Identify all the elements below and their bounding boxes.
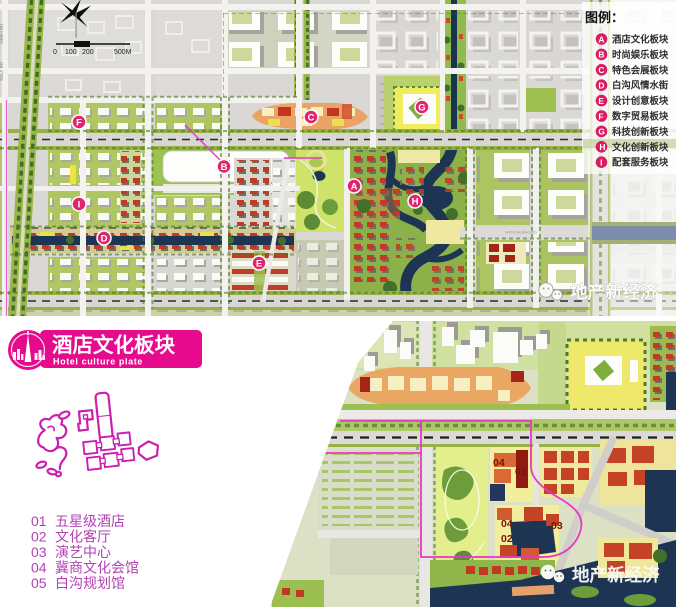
svg-text:酒店文化板块: 酒店文化板块 [52,333,175,357]
svg-text:D: D [598,81,604,91]
svg-text:酒店文化板块: 酒店文化板块 [612,34,669,45]
svg-text:E: E [598,96,604,106]
svg-text:01: 01 [515,466,527,478]
svg-text:GEBH RD: GEBH RD [0,23,4,44]
svg-text:H: H [412,197,419,208]
svg-text:D: D [101,234,108,245]
svg-text:04: 04 [493,457,505,469]
svg-text:图例：: 图例： [585,10,624,25]
svg-text:白沟规划馆: 白沟规划馆 [55,575,125,591]
svg-text:02: 02 [31,529,47,545]
svg-text:B: B [221,162,228,173]
svg-text:C: C [308,113,315,124]
svg-text:G: G [418,103,425,114]
svg-text:数字贸易板块: 数字贸易板块 [611,111,669,122]
svg-text:03: 03 [551,520,563,532]
svg-text:03: 03 [31,544,47,560]
svg-text:演艺中心: 演艺中心 [55,544,111,560]
svg-text:G: G [598,127,605,137]
svg-text:文化客厅: 文化客厅 [55,529,111,545]
svg-text:白沟风情水街: 白沟风情水街 [612,80,669,91]
svg-text:地产新经济: 地产新经济 [572,565,660,585]
svg-text:E: E [256,259,262,270]
svg-text:文化创新板块: 文化创新板块 [611,141,669,152]
svg-text:F: F [76,118,82,129]
svg-text:特色会展板块: 特色会展板块 [612,64,669,75]
svg-text:500M: 500M [114,49,132,56]
svg-text:时尚娱乐板块: 时尚娱乐板块 [612,49,669,60]
svg-text:05: 05 [31,575,47,591]
svg-text:地产新经济: 地产新经济 [570,282,658,302]
svg-text:科技创新板块: 科技创新板块 [612,126,669,137]
svg-text:WENCHUANG RD: WENCHUANG RD [505,231,537,235]
svg-text:B: B [598,50,604,60]
svg-text:200: 200 [82,49,94,56]
svg-text:Hotel culture plate: Hotel culture plate [53,357,143,367]
svg-text:设计创意板块: 设计创意板块 [612,95,669,106]
svg-text:A: A [598,34,604,44]
svg-text:A: A [351,182,358,193]
svg-text:01: 01 [31,513,47,529]
svg-text:I: I [78,200,81,211]
svg-text:02: 02 [501,533,513,545]
svg-text:H: H [599,142,605,152]
svg-text:SOLT RD: SOLT RD [0,61,4,81]
svg-text:冀商文化会馆: 冀商文化会馆 [55,560,139,576]
svg-text:配套服务板块: 配套服务板块 [612,157,669,168]
svg-text:C: C [598,65,604,75]
svg-text:0: 0 [53,49,57,56]
svg-text:五星级酒店: 五星级酒店 [55,513,125,529]
svg-text:04: 04 [501,518,513,530]
svg-text:100: 100 [65,49,77,56]
svg-text:I: I [600,158,602,168]
svg-text:F: F [598,111,603,121]
svg-text:04: 04 [31,560,47,576]
